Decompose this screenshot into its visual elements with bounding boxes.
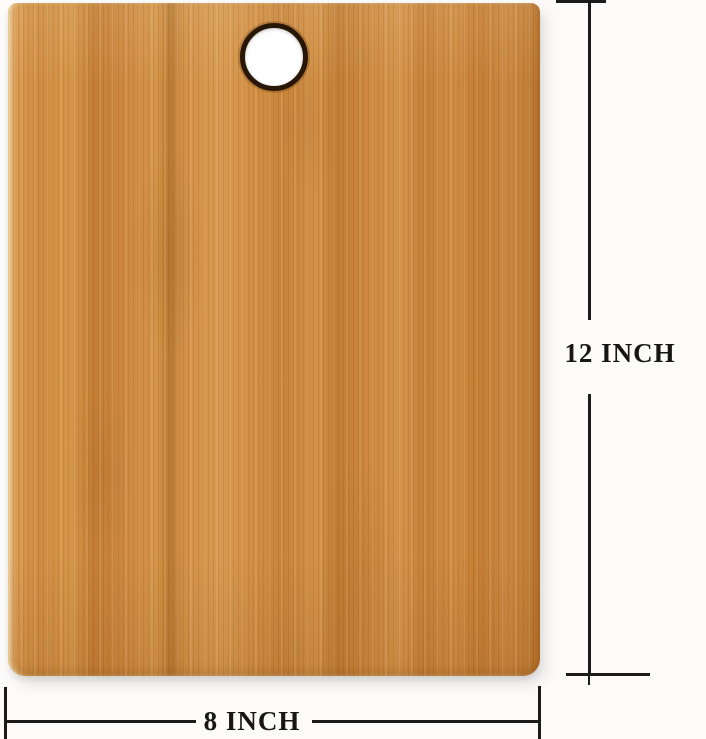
bamboo-cutting-board — [8, 3, 540, 676]
height-dimension-line-lower — [588, 394, 591, 676]
width-dimension-right-tick — [538, 686, 541, 739]
height-dimension-label: 12 INCH — [556, 338, 684, 369]
width-dimension-label: 8 INCH — [192, 706, 312, 737]
height-dimension-line-stub — [588, 676, 590, 685]
width-dimension-line-left — [6, 720, 196, 723]
height-dimension-line-upper — [588, 2, 591, 320]
hanging-hole — [240, 23, 308, 91]
height-dimension-bottom-tick — [566, 673, 650, 676]
width-dimension-left-tick — [4, 687, 7, 739]
width-dimension-line-right — [312, 720, 540, 723]
product-dimension-image: 12 INCH 8 INCH — [0, 0, 706, 739]
height-dimension-top-tick — [556, 0, 606, 3]
